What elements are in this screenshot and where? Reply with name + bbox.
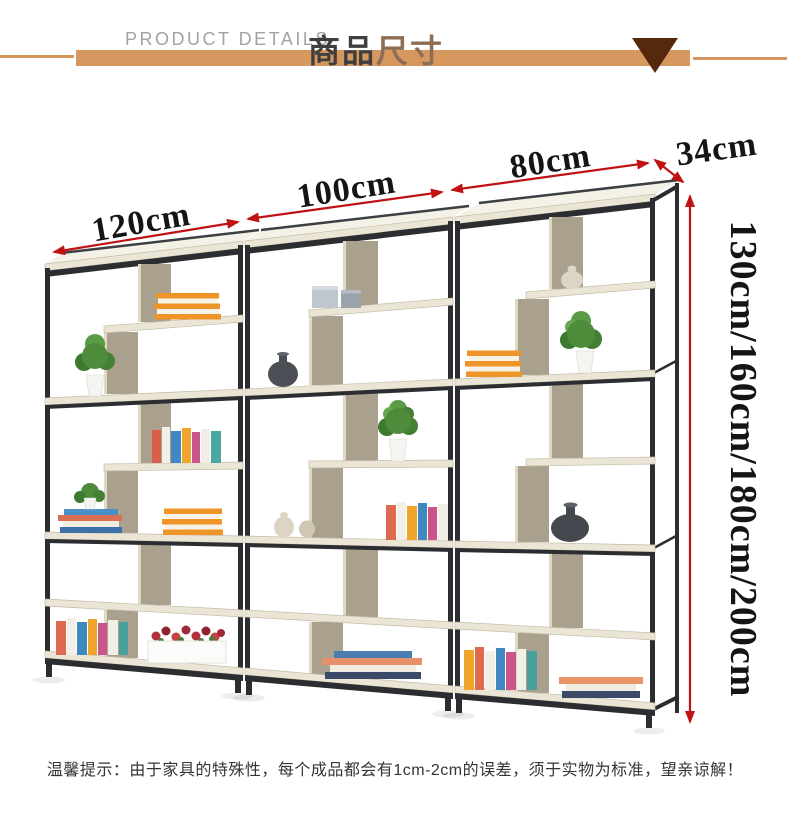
shelf-unit-right: [455, 180, 679, 728]
book-pile-decor: [322, 651, 422, 679]
books-row-decor: [386, 502, 448, 540]
flower-box-decor: [148, 626, 226, 664]
book-stack-decor: [162, 509, 223, 536]
plant-decor: [378, 400, 418, 461]
dimension-label-depth: 34cm: [674, 126, 760, 174]
product-dimension-diagram: 120cm 100cm 80cm 34cm 130cm/160cm/180cm/…: [0, 0, 790, 817]
book-stack-decor: [465, 351, 522, 378]
books-row-decor: [152, 427, 221, 463]
books-row-decor: [56, 618, 128, 655]
dimension-label-width-right: 80cm: [507, 137, 593, 186]
dimension-label-width-middle: 100cm: [294, 164, 398, 216]
gourd-decor: [274, 512, 315, 538]
dimension-label-heights: 130cm/160cm/180cm/200cm: [722, 221, 764, 698]
book-stack-decor: [154, 293, 221, 320]
shelf-unit-middle: [245, 206, 469, 711]
footer-note: 温馨提示：由于家具的特殊性，每个成品都会有1cm-2cm的误差，须于实物为标准，…: [0, 756, 790, 780]
plant-decor: [560, 311, 602, 373]
shelf-unit-left: [45, 230, 259, 693]
book-pile-decor: [559, 677, 643, 698]
vase-decor: [551, 503, 589, 543]
vase-decor: [268, 352, 298, 387]
